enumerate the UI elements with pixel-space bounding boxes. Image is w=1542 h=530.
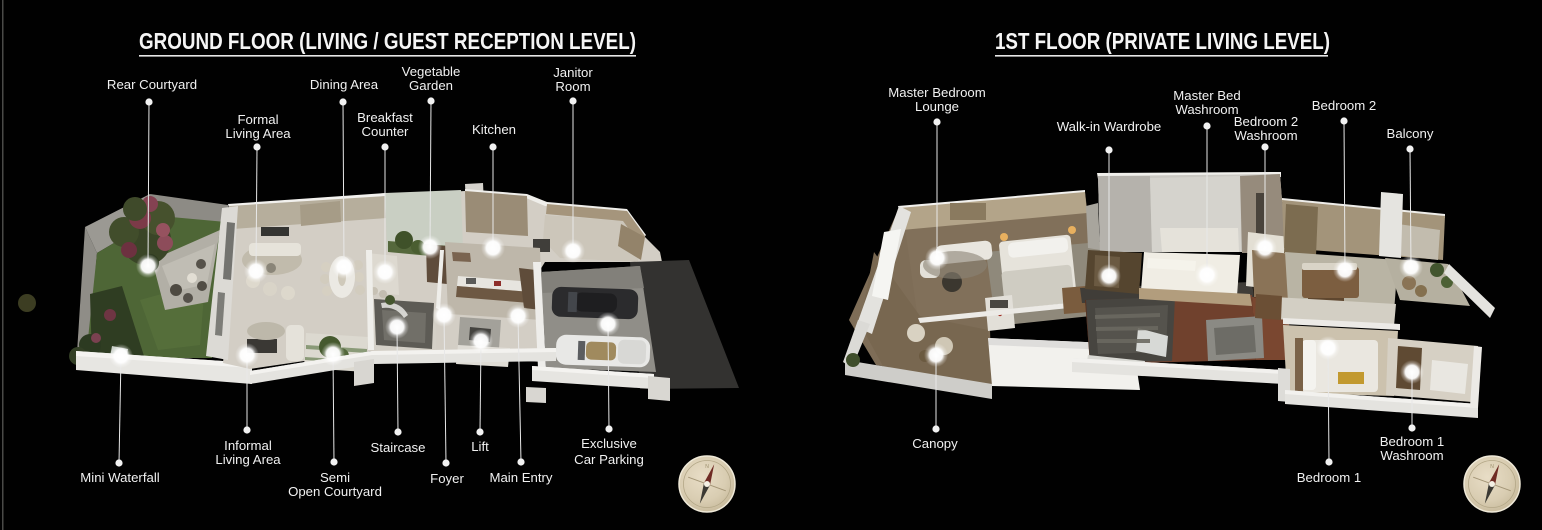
svg-text:Counter: Counter xyxy=(362,124,410,139)
svg-text:Bedroom 1: Bedroom 1 xyxy=(1380,434,1445,449)
svg-text:Washroom: Washroom xyxy=(1234,128,1297,143)
svg-text:Staircase: Staircase xyxy=(371,440,426,455)
svg-text:Janitor: Janitor xyxy=(553,65,593,80)
svg-text:Breakfast: Breakfast xyxy=(357,110,413,125)
svg-text:Living Area: Living Area xyxy=(225,126,291,141)
svg-text:GROUND FLOOR (LIVING / GUEST R: GROUND FLOOR (LIVING / GUEST RECEPTION L… xyxy=(139,28,636,54)
svg-text:Informal: Informal xyxy=(224,438,272,453)
svg-text:Master Bedroom: Master Bedroom xyxy=(888,85,985,100)
svg-text:Lift: Lift xyxy=(471,439,489,454)
svg-text:Rear Courtyard: Rear Courtyard xyxy=(107,77,197,92)
svg-text:Washroom: Washroom xyxy=(1380,448,1443,463)
svg-text:Bedroom 2: Bedroom 2 xyxy=(1234,114,1299,129)
svg-text:Car Parking: Car Parking xyxy=(574,452,644,467)
svg-text:Mini Waterfall: Mini Waterfall xyxy=(80,470,159,485)
svg-text:Walk-in Wardrobe: Walk-in Wardrobe xyxy=(1057,119,1162,134)
svg-text:Balcony: Balcony xyxy=(1387,126,1434,141)
svg-text:N: N xyxy=(1490,464,1494,470)
svg-text:Bedroom 2: Bedroom 2 xyxy=(1312,98,1377,113)
svg-text:Living Area: Living Area xyxy=(215,452,281,467)
svg-text:Garden: Garden xyxy=(409,78,453,93)
svg-text:Room: Room xyxy=(555,79,590,94)
svg-text:N: N xyxy=(705,464,709,470)
svg-text:Lounge: Lounge xyxy=(915,99,959,114)
svg-text:Washroom: Washroom xyxy=(1175,102,1238,117)
svg-text:Vegetable: Vegetable xyxy=(402,64,461,79)
svg-text:1ST FLOOR (PRIVATE LIVING LEVE: 1ST FLOOR (PRIVATE LIVING LEVEL) xyxy=(995,28,1330,54)
svg-text:Bedroom 1: Bedroom 1 xyxy=(1297,470,1362,485)
svg-text:Dining Area: Dining Area xyxy=(310,77,379,92)
svg-text:Master Bed: Master Bed xyxy=(1173,88,1240,103)
svg-text:Formal: Formal xyxy=(237,112,278,127)
svg-text:Open Courtyard: Open Courtyard xyxy=(288,484,382,499)
svg-text:Main Entry: Main Entry xyxy=(489,470,552,485)
svg-text:Semi: Semi xyxy=(320,470,350,485)
svg-text:Kitchen: Kitchen xyxy=(472,122,516,137)
svg-text:Exclusive: Exclusive xyxy=(581,436,637,451)
svg-text:Foyer: Foyer xyxy=(430,471,464,486)
svg-text:Canopy: Canopy xyxy=(912,436,958,451)
